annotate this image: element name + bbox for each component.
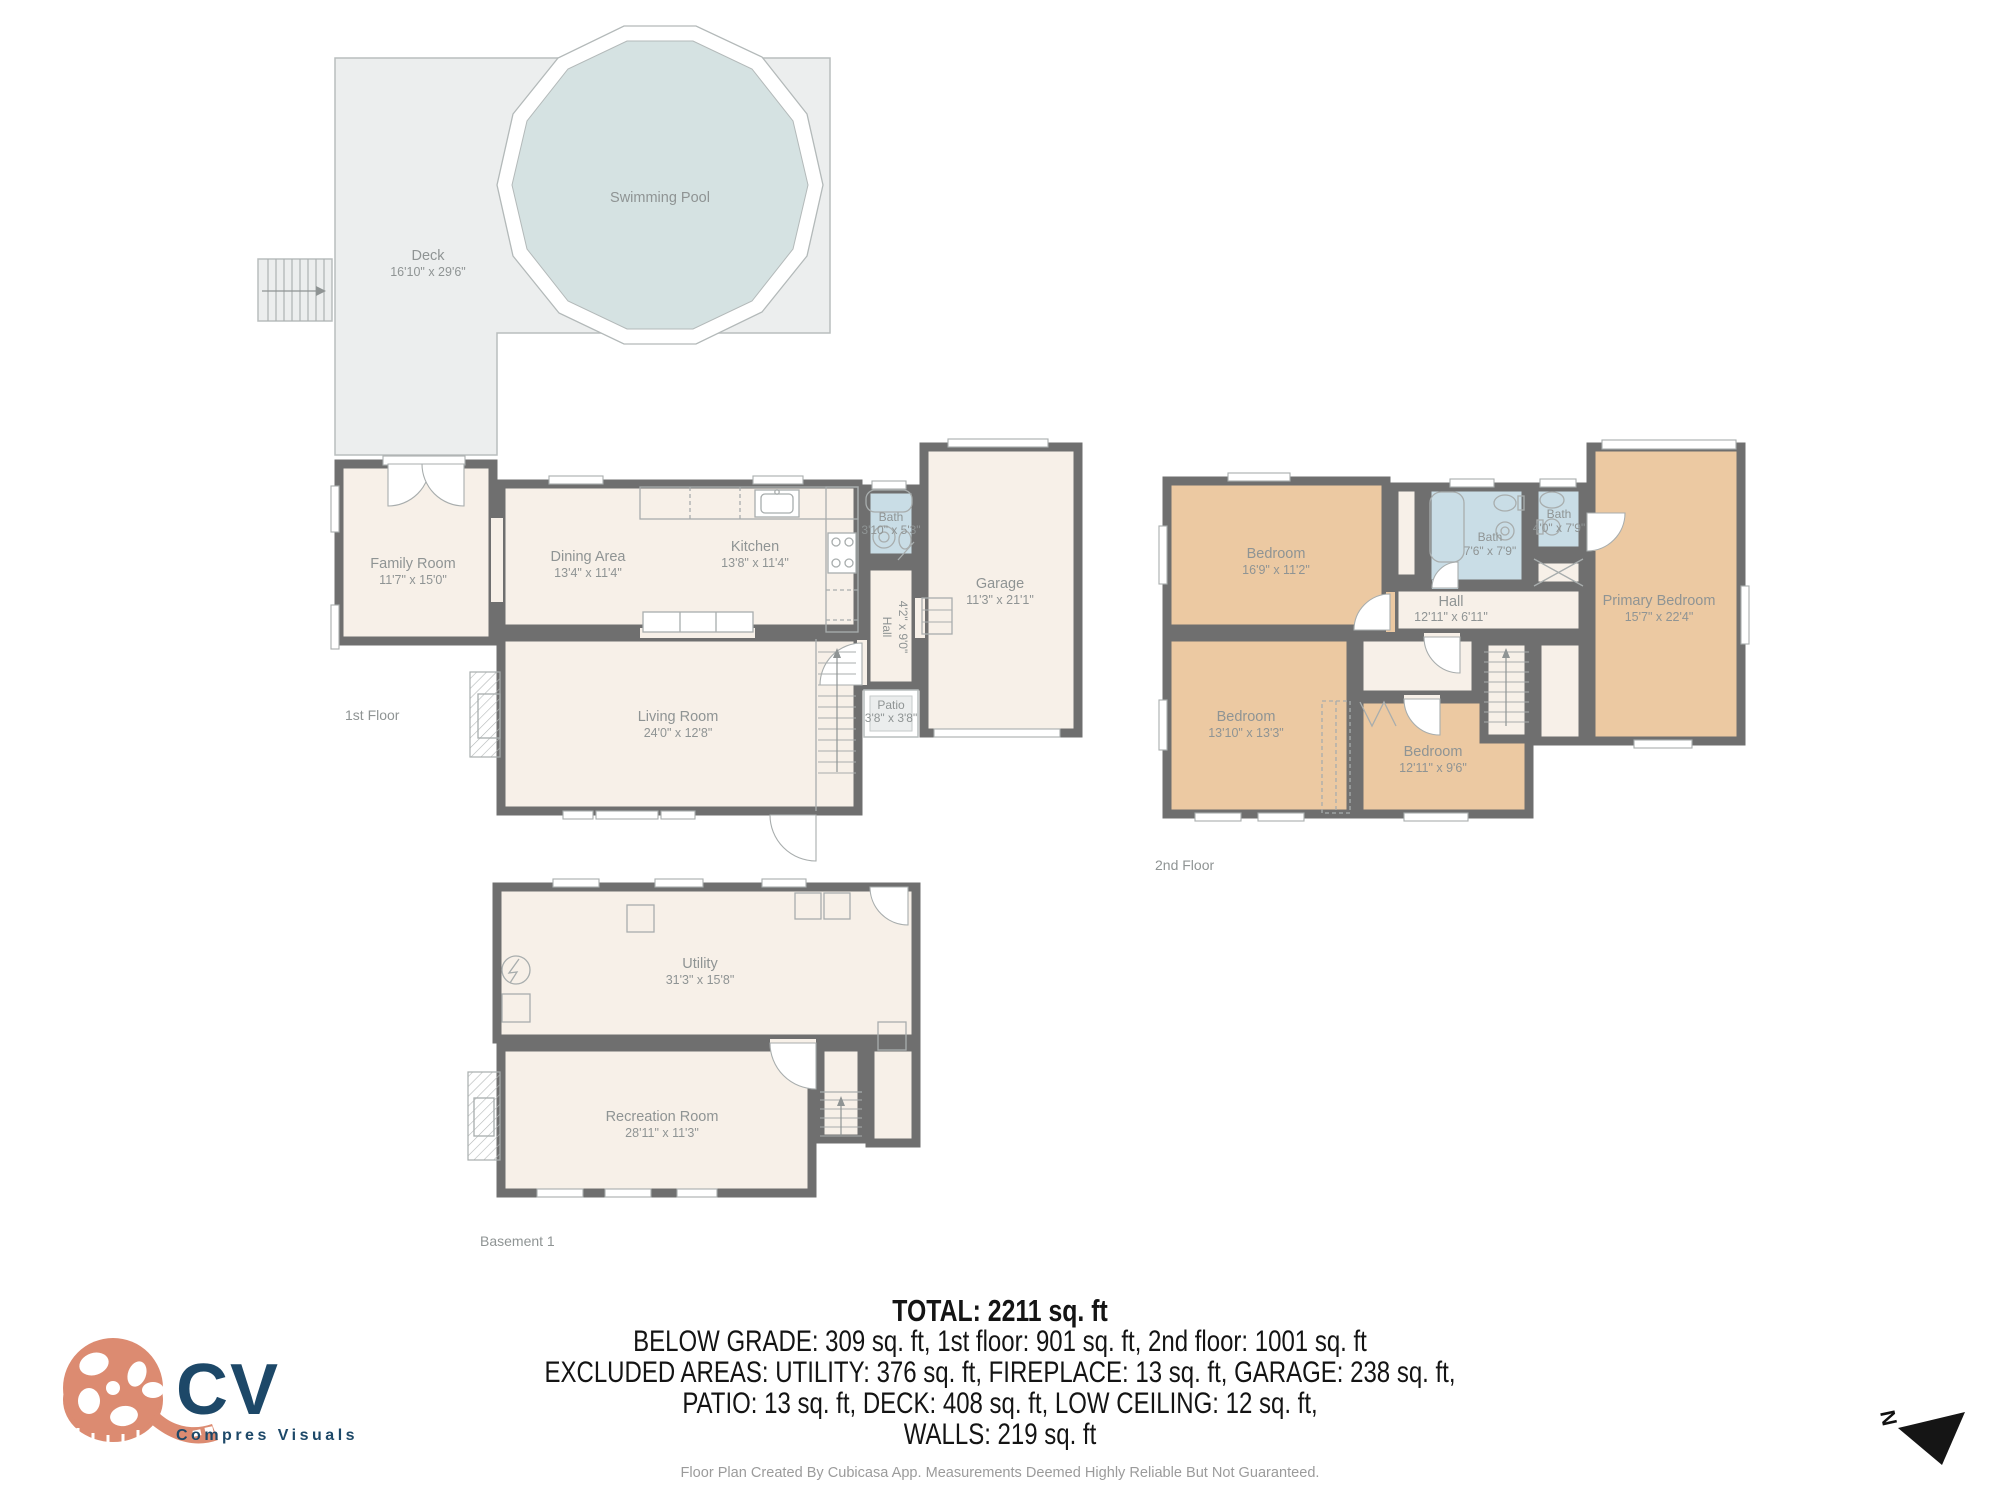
recreation-room-label: Recreation Room xyxy=(606,1109,719,1125)
fireplace xyxy=(470,672,500,757)
first-floor-title: 1st Floor xyxy=(345,707,400,723)
primary-bedroom-dims: 15'7" x 22'4" xyxy=(1625,610,1694,624)
swimming-pool xyxy=(497,26,823,344)
walls-area-line: WALLS: 219 sq. ft xyxy=(200,1419,1800,1450)
floor-plan-drawing: Deck 16'10" x 29'6" Swimming Pool xyxy=(0,0,2000,1500)
first-floor-plan: Family Room 11'7" x 15'0" Dining Area 13… xyxy=(331,439,1078,861)
living-room-label: Living Room xyxy=(638,709,719,725)
deck-and-pool: Deck 16'10" x 29'6" Swimming Pool xyxy=(258,26,830,455)
hall-upper-dims: 12'11" x 6'11" xyxy=(1414,610,1488,624)
hall-dims: 4'2" x 9'0" xyxy=(896,601,910,653)
family-room-dims: 11'7" x 15'0" xyxy=(379,573,447,587)
disclaimer-text: Floor Plan Created By Cubicasa App. Meas… xyxy=(30,1464,1970,1481)
bedroom2-label: Bedroom xyxy=(1217,709,1276,725)
garage-dims: 11'3" x 21'1" xyxy=(966,593,1034,607)
bath-label: Bath xyxy=(879,510,904,524)
landing-right xyxy=(1537,641,1583,741)
basement-right-bay xyxy=(870,1047,916,1143)
deck-dims: 16'10" x 29'6" xyxy=(390,265,466,279)
deck-stairs xyxy=(258,259,332,321)
family-dining-opening xyxy=(491,518,503,602)
patio-dims: 3'8" x 3'8" xyxy=(865,711,917,725)
bath-dims: 3'10" x 5'3" xyxy=(861,523,920,537)
bath-small-label: Bath xyxy=(1547,507,1572,521)
bedroom3-dims: 12'11" x 9'6" xyxy=(1399,761,1467,775)
closet-xbox xyxy=(1534,559,1583,586)
living-room-dims: 24'0" x 12'8" xyxy=(644,726,713,740)
second-floor-plan: Bedroom 16'9" x 11'2" Bath 7'6" x 7'9" B… xyxy=(1155,440,1749,873)
primary-bedroom-label: Primary Bedroom xyxy=(1603,593,1716,609)
hall-upper-label: Hall xyxy=(1439,594,1464,610)
kitchen-dims: 13'8" x 11'4" xyxy=(721,556,789,570)
excluded-areas-line-2: PATIO: 13 sq. ft, DECK: 408 sq. ft, LOW … xyxy=(200,1388,1800,1419)
area-summary: TOTAL: 2211 sq. ft BELOW GRADE: 309 sq. … xyxy=(0,1295,2000,1481)
recreation-room-dims: 28'11" x 11'3" xyxy=(625,1126,699,1140)
grade-areas-line: BELOW GRADE: 309 sq. ft, 1st floor: 901 … xyxy=(200,1326,1800,1357)
stove xyxy=(828,533,856,573)
total-area-line: TOTAL: 2211 sq. ft xyxy=(200,1295,1800,1326)
bath-main-label: Bath xyxy=(1478,530,1503,544)
bedroom3-label: Bedroom xyxy=(1404,744,1463,760)
utility-label: Utility xyxy=(682,956,718,972)
front-door xyxy=(770,815,816,861)
basement-fireplace xyxy=(468,1072,500,1160)
dining-area-label: Dining Area xyxy=(551,549,627,565)
floor-plan-page: Deck 16'10" x 29'6" Swimming Pool xyxy=(0,0,2000,1500)
dining-area-dims: 13'4" x 11'4" xyxy=(554,566,622,580)
basement-title: Basement 1 xyxy=(480,1233,555,1249)
deck-label: Deck xyxy=(411,248,445,264)
kitchen-label: Kitchen xyxy=(731,539,779,555)
family-room-label: Family Room xyxy=(370,556,455,572)
garage-door xyxy=(934,729,1060,737)
bath-main-dims: 7'6" x 7'9" xyxy=(1464,544,1516,558)
bedroom1-label: Bedroom xyxy=(1247,546,1306,562)
kitchen-island xyxy=(643,612,753,632)
garage-label: Garage xyxy=(976,576,1024,592)
vestibule xyxy=(1394,487,1419,579)
utility-dims: 31'3" x 15'8" xyxy=(666,973,735,987)
bedroom1-dims: 16'9" x 11'2" xyxy=(1242,563,1310,577)
basement-plan: Utility 31'3" x 15'8" Recreation Room 28… xyxy=(468,879,916,1249)
second-floor-title: 2nd Floor xyxy=(1155,857,1214,873)
patio-label: Patio xyxy=(877,698,905,712)
swimming-pool-label: Swimming Pool xyxy=(610,190,710,206)
hall-garage-opening xyxy=(915,598,925,638)
bath-small-dims: 4'0" x 7'9" xyxy=(1533,521,1585,535)
bedroom2-dims: 13'10" x 13'3" xyxy=(1208,726,1284,740)
hall-label: Hall xyxy=(880,617,894,638)
excluded-areas-line-1: EXCLUDED AREAS: UTILITY: 376 sq. ft, FIR… xyxy=(200,1357,1800,1388)
